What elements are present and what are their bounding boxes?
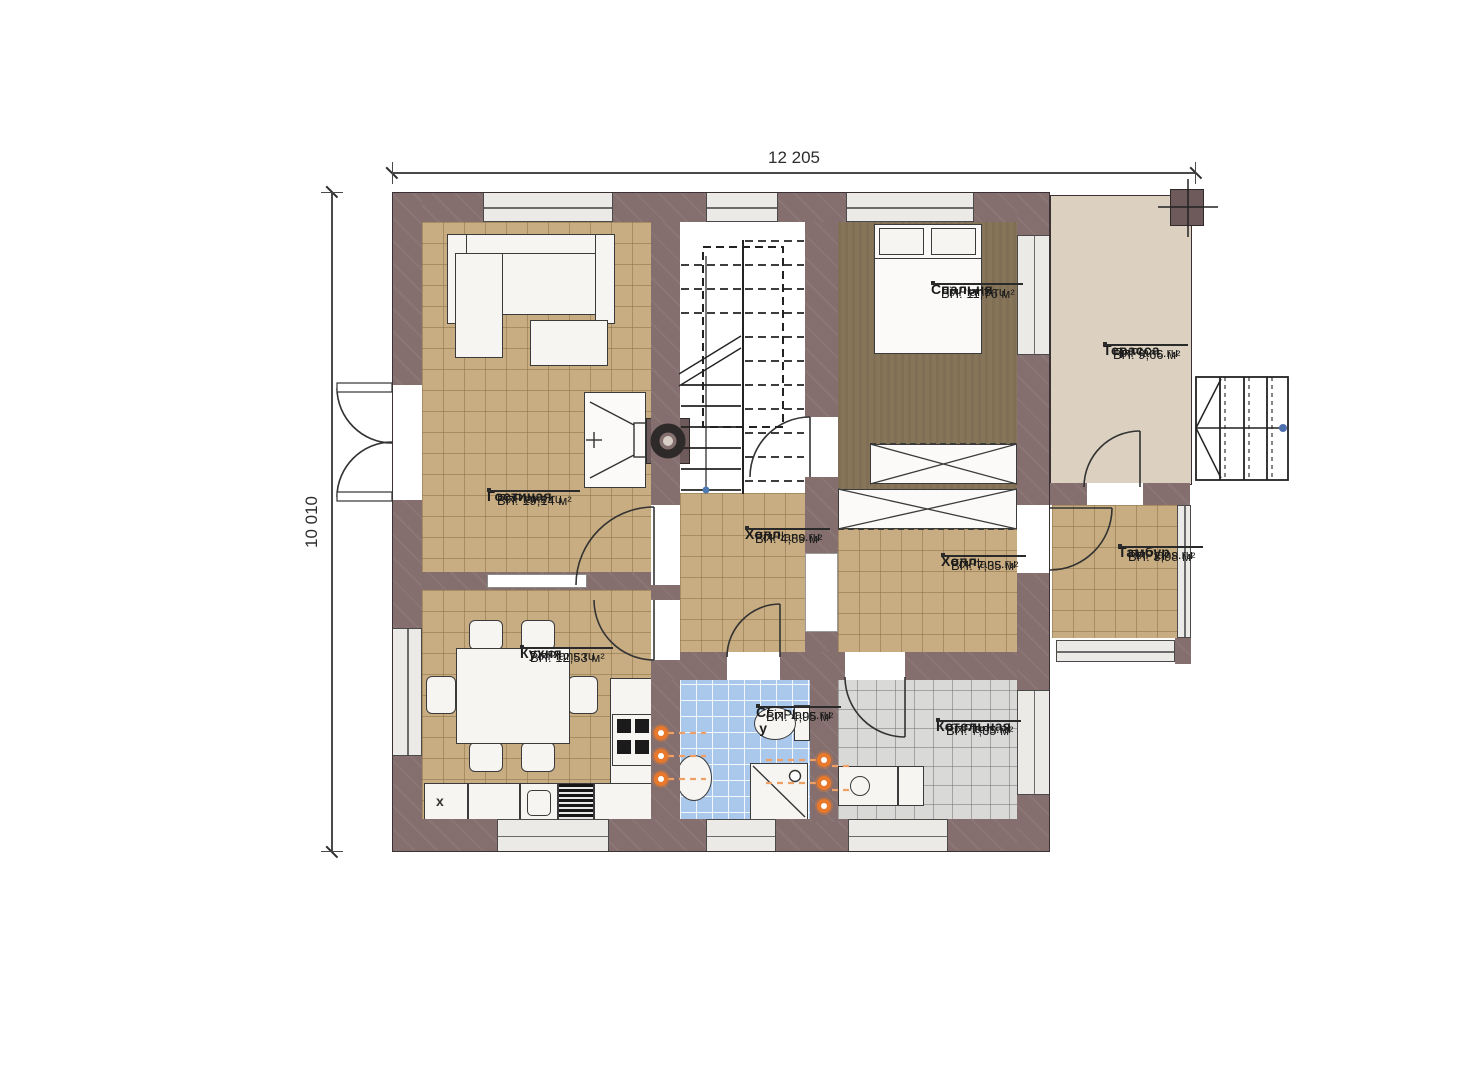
coffee-table xyxy=(530,320,608,366)
door-opening-french-living xyxy=(392,385,422,500)
dimension-guide xyxy=(321,192,343,193)
window-boiler-bottom xyxy=(848,819,948,852)
door-opening-bedroom xyxy=(805,417,838,477)
radiator-marker xyxy=(817,799,831,813)
window-stairwell-top xyxy=(706,192,778,222)
stove-burner xyxy=(635,740,649,754)
door-opening-kitchen-hall xyxy=(651,600,680,660)
boiler-side xyxy=(898,766,924,806)
radiator-marker xyxy=(654,749,668,763)
radiator-marker xyxy=(654,772,668,786)
stove-burner xyxy=(617,740,631,754)
room-area: ВП: 7,35 м² xyxy=(943,555,1026,575)
washbasin xyxy=(676,755,712,801)
dining-chair xyxy=(568,676,598,714)
fridge-marker-label: х xyxy=(436,793,444,809)
room-area: ВП: 12,53 м² xyxy=(522,647,613,667)
wall-hall-boiler xyxy=(905,652,1017,680)
window-kitchen-bottom xyxy=(497,819,609,852)
dimension-guide xyxy=(392,162,393,184)
wardrobe-box xyxy=(870,444,1017,484)
terrace-column xyxy=(1170,189,1204,226)
dining-chair xyxy=(469,742,503,772)
stove-burner xyxy=(617,719,631,733)
dimension-width-label: 12 205 xyxy=(768,148,820,168)
floor-plan-canvas: х Гостиная FixPlans.ru ВП: 19,14 м² Кухн… xyxy=(0,0,1473,1080)
room-area: ВП: 11,76 м² xyxy=(933,283,1023,303)
radiator-marker xyxy=(817,753,831,767)
window-bedroom-top xyxy=(846,192,974,222)
wall-stairwell-right xyxy=(805,632,838,652)
door-opening-tambur-terrace xyxy=(1087,483,1143,505)
terrace-floor xyxy=(1050,195,1192,485)
window-living-top xyxy=(483,192,613,222)
shower-tray xyxy=(750,763,808,820)
bed-pillow xyxy=(879,228,924,255)
counter xyxy=(594,783,652,821)
sofa-back xyxy=(447,234,615,254)
wall-tambur-top xyxy=(1143,483,1190,505)
radiator-marker xyxy=(654,726,668,740)
window-kitchen-left xyxy=(392,628,422,756)
room-area: ВП: 9,66 м² xyxy=(1105,344,1188,364)
room-area: ВП: 4,89 м² xyxy=(747,528,830,548)
door-opening-living-hall xyxy=(651,505,680,585)
sofa-chaise xyxy=(455,253,503,358)
hall1-floor xyxy=(680,493,805,652)
dining-chair xyxy=(521,742,555,772)
boiler-gauge xyxy=(850,776,870,796)
wall-stairwell-right xyxy=(805,222,838,417)
wall-kitchen-bath xyxy=(651,660,680,819)
pass-niche xyxy=(487,574,587,588)
room-area: ВП: 4,95 м² xyxy=(758,706,841,726)
dimension-height-label: 10 010 xyxy=(302,496,322,548)
dining-chair xyxy=(426,676,456,714)
fireplace xyxy=(584,392,646,488)
sofa-arm-right xyxy=(595,234,615,324)
radiator-marker xyxy=(817,776,831,790)
window-tambur-bottom xyxy=(1056,640,1175,662)
hall2-floor xyxy=(838,529,1017,655)
window-boiler-right xyxy=(1017,690,1050,795)
wall-tambur-top xyxy=(1050,483,1087,505)
room-area: ВП: 3,98 м² xyxy=(1120,546,1203,566)
wardrobe-box xyxy=(838,489,1017,529)
room-area: ВП: 19,14 м² xyxy=(489,490,580,510)
dimension-guide xyxy=(321,851,343,852)
fridge-box xyxy=(424,783,468,821)
window-tambur-right xyxy=(1177,505,1191,638)
dimension-guide xyxy=(1195,162,1196,184)
dimension-line-left xyxy=(331,192,333,852)
wall-bath-boiler xyxy=(810,652,838,822)
wall-tambur-corner xyxy=(1175,638,1191,664)
tambur-floor xyxy=(1052,505,1177,638)
window-bath-bottom xyxy=(706,819,776,852)
dining-chair xyxy=(469,620,503,650)
door-opening-bath xyxy=(727,652,780,680)
room-area: ВП: 7,35 м² xyxy=(938,720,1021,740)
counter xyxy=(468,783,520,821)
bed-blanket-line xyxy=(874,258,982,259)
bed-pillow xyxy=(931,228,976,255)
stove-burner xyxy=(635,719,649,733)
passage-hall1-hall2 xyxy=(805,553,838,632)
door-opening-boiler xyxy=(845,652,905,680)
wall-pier xyxy=(651,585,680,600)
wall-stairwell-left xyxy=(651,222,680,505)
sink-basin xyxy=(527,790,551,816)
dimension-line-top xyxy=(392,172,1196,174)
